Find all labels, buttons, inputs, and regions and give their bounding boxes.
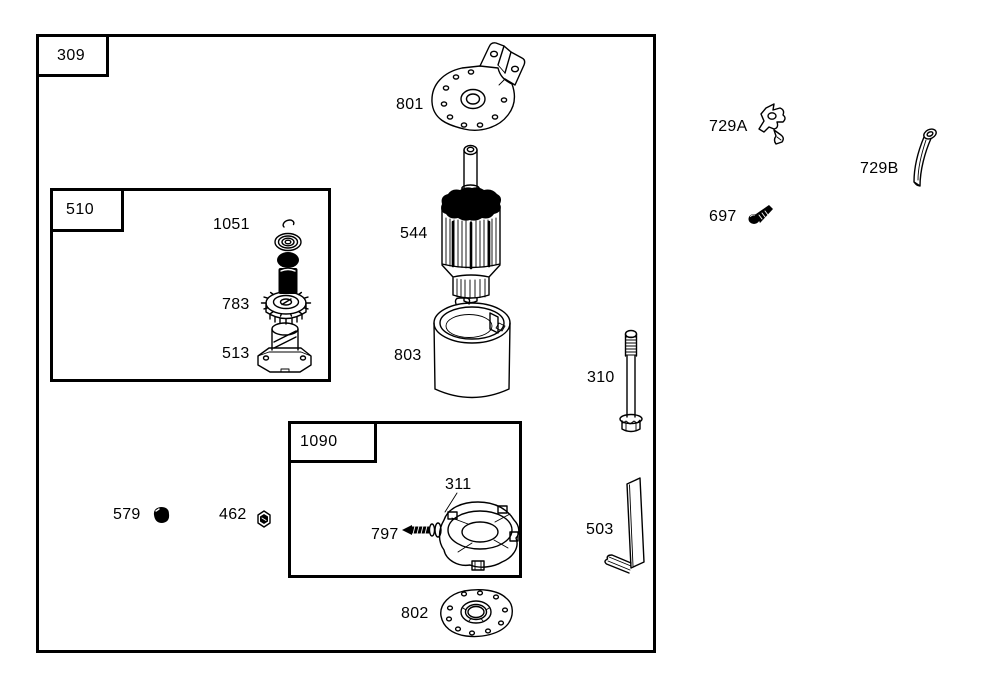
group-label-1090: 1090: [300, 433, 338, 451]
parts-diagram-canvas: 309 510 1090 801 544 803 1051 783 513 31…: [0, 0, 995, 698]
end-cap-802-drawing: [436, 586, 516, 640]
part-label-729A: 729A: [709, 118, 748, 136]
group-label-510: 510: [66, 201, 94, 219]
screw-697-drawing: [746, 202, 776, 228]
part-label-579: 579: [113, 506, 141, 524]
part-label-729B: 729B: [860, 160, 899, 178]
bracket-503-drawing: [598, 476, 648, 576]
nut-462-drawing: [255, 510, 275, 530]
part-label-697: 697: [709, 208, 737, 226]
brush-assembly-311-drawing: [398, 474, 524, 574]
group-label-box-1090: 1090: [288, 421, 377, 463]
part-label-544: 544: [400, 225, 428, 243]
housing-803-drawing: [430, 296, 514, 412]
thru-bolt-310-drawing: [612, 326, 646, 438]
clip-729A-drawing: [754, 102, 788, 150]
mounting-bracket-801-drawing: [418, 38, 543, 146]
clip-729B-drawing: [906, 126, 940, 192]
part-label-1051: 1051: [213, 216, 250, 234]
retainer-stack-1051-drawing: [272, 218, 308, 296]
group-label-box-309: 309: [36, 34, 109, 77]
group-label-box-510: 510: [50, 188, 124, 232]
clutch-513-drawing: [254, 320, 314, 376]
part-label-310: 310: [587, 369, 615, 387]
part-label-797: 797: [371, 526, 399, 544]
nut-579-drawing: [150, 504, 172, 526]
part-label-802: 802: [401, 605, 429, 623]
group-label-309: 309: [57, 47, 85, 65]
part-label-513: 513: [222, 345, 250, 363]
armature-544-drawing: [436, 142, 506, 304]
screw-797-drawing: [402, 523, 441, 537]
part-label-803: 803: [394, 347, 422, 365]
part-label-462: 462: [219, 506, 247, 524]
part-label-783: 783: [222, 296, 250, 314]
